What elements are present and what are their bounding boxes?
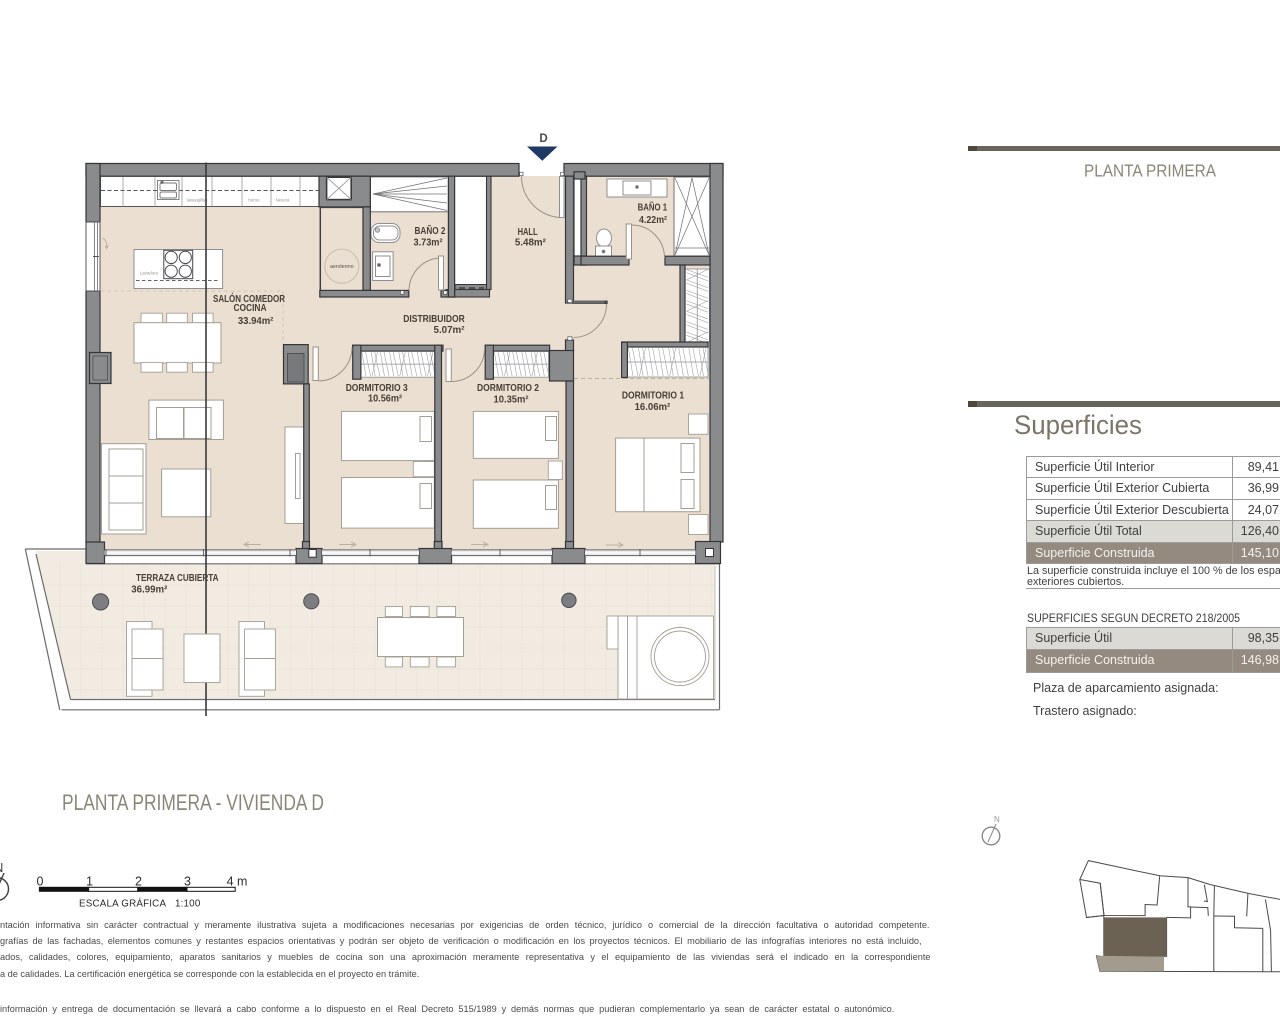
- svg-text:COCINA: COCINA: [234, 302, 267, 314]
- svg-text:D: D: [539, 133, 547, 145]
- svg-text:aerotermo: aerotermo: [330, 264, 354, 270]
- svg-text:Horno: Horno: [248, 198, 260, 203]
- svg-text:PLANTA PRIMERA - VIVIENDA D: PLANTA PRIMERA - VIVIENDA D: [62, 790, 324, 815]
- svg-text:36.99m²: 36.99m²: [131, 584, 167, 596]
- svg-text:N: N: [994, 815, 1000, 824]
- svg-text:33.94m²: 33.94m²: [238, 315, 274, 327]
- svg-text:Nevera: Nevera: [276, 198, 290, 203]
- svg-text:lavavajillas: lavavajillas: [187, 198, 208, 203]
- svg-text:2: 2: [135, 875, 142, 889]
- svg-text:DORMITORIO 1: DORMITORIO 1: [622, 390, 684, 402]
- svg-text:5.48m²: 5.48m²: [515, 237, 546, 249]
- svg-text:5.07m²: 5.07m²: [434, 324, 465, 336]
- svg-text:Lavadora: Lavadora: [140, 271, 159, 276]
- svg-text:3: 3: [184, 875, 191, 889]
- svg-text:DORMITORIO 2: DORMITORIO 2: [477, 382, 539, 394]
- svg-text:SUPERFICIES SEGUN DECRETO 218/: SUPERFICIES SEGUN DECRETO 218/2005: [1027, 611, 1240, 625]
- svg-text:Superficies: Superficies: [1014, 410, 1142, 440]
- svg-text:4.22m²: 4.22m²: [639, 214, 667, 226]
- svg-text:0: 0: [37, 875, 44, 889]
- svg-text:10.56m²: 10.56m²: [368, 392, 402, 404]
- svg-text:ESCALA GRÁFICA 1:100: ESCALA GRÁFICA 1:100: [79, 899, 201, 910]
- svg-text:10.35m²: 10.35m²: [494, 394, 529, 406]
- svg-text:4 m: 4 m: [227, 875, 248, 889]
- svg-text:16.06m²: 16.06m²: [635, 401, 671, 413]
- svg-text:3.73m²: 3.73m²: [414, 237, 443, 249]
- svg-text:1: 1: [86, 875, 93, 889]
- svg-text:TERRAZA CUBIERTA: TERRAZA CUBIERTA: [136, 572, 219, 584]
- svg-text:PLANTA PRIMERA: PLANTA PRIMERA: [1084, 161, 1216, 181]
- svg-text:N: N: [0, 860, 3, 875]
- svg-text:BAÑO 2: BAÑO 2: [415, 224, 446, 237]
- svg-text:BAÑO 1: BAÑO 1: [638, 201, 668, 214]
